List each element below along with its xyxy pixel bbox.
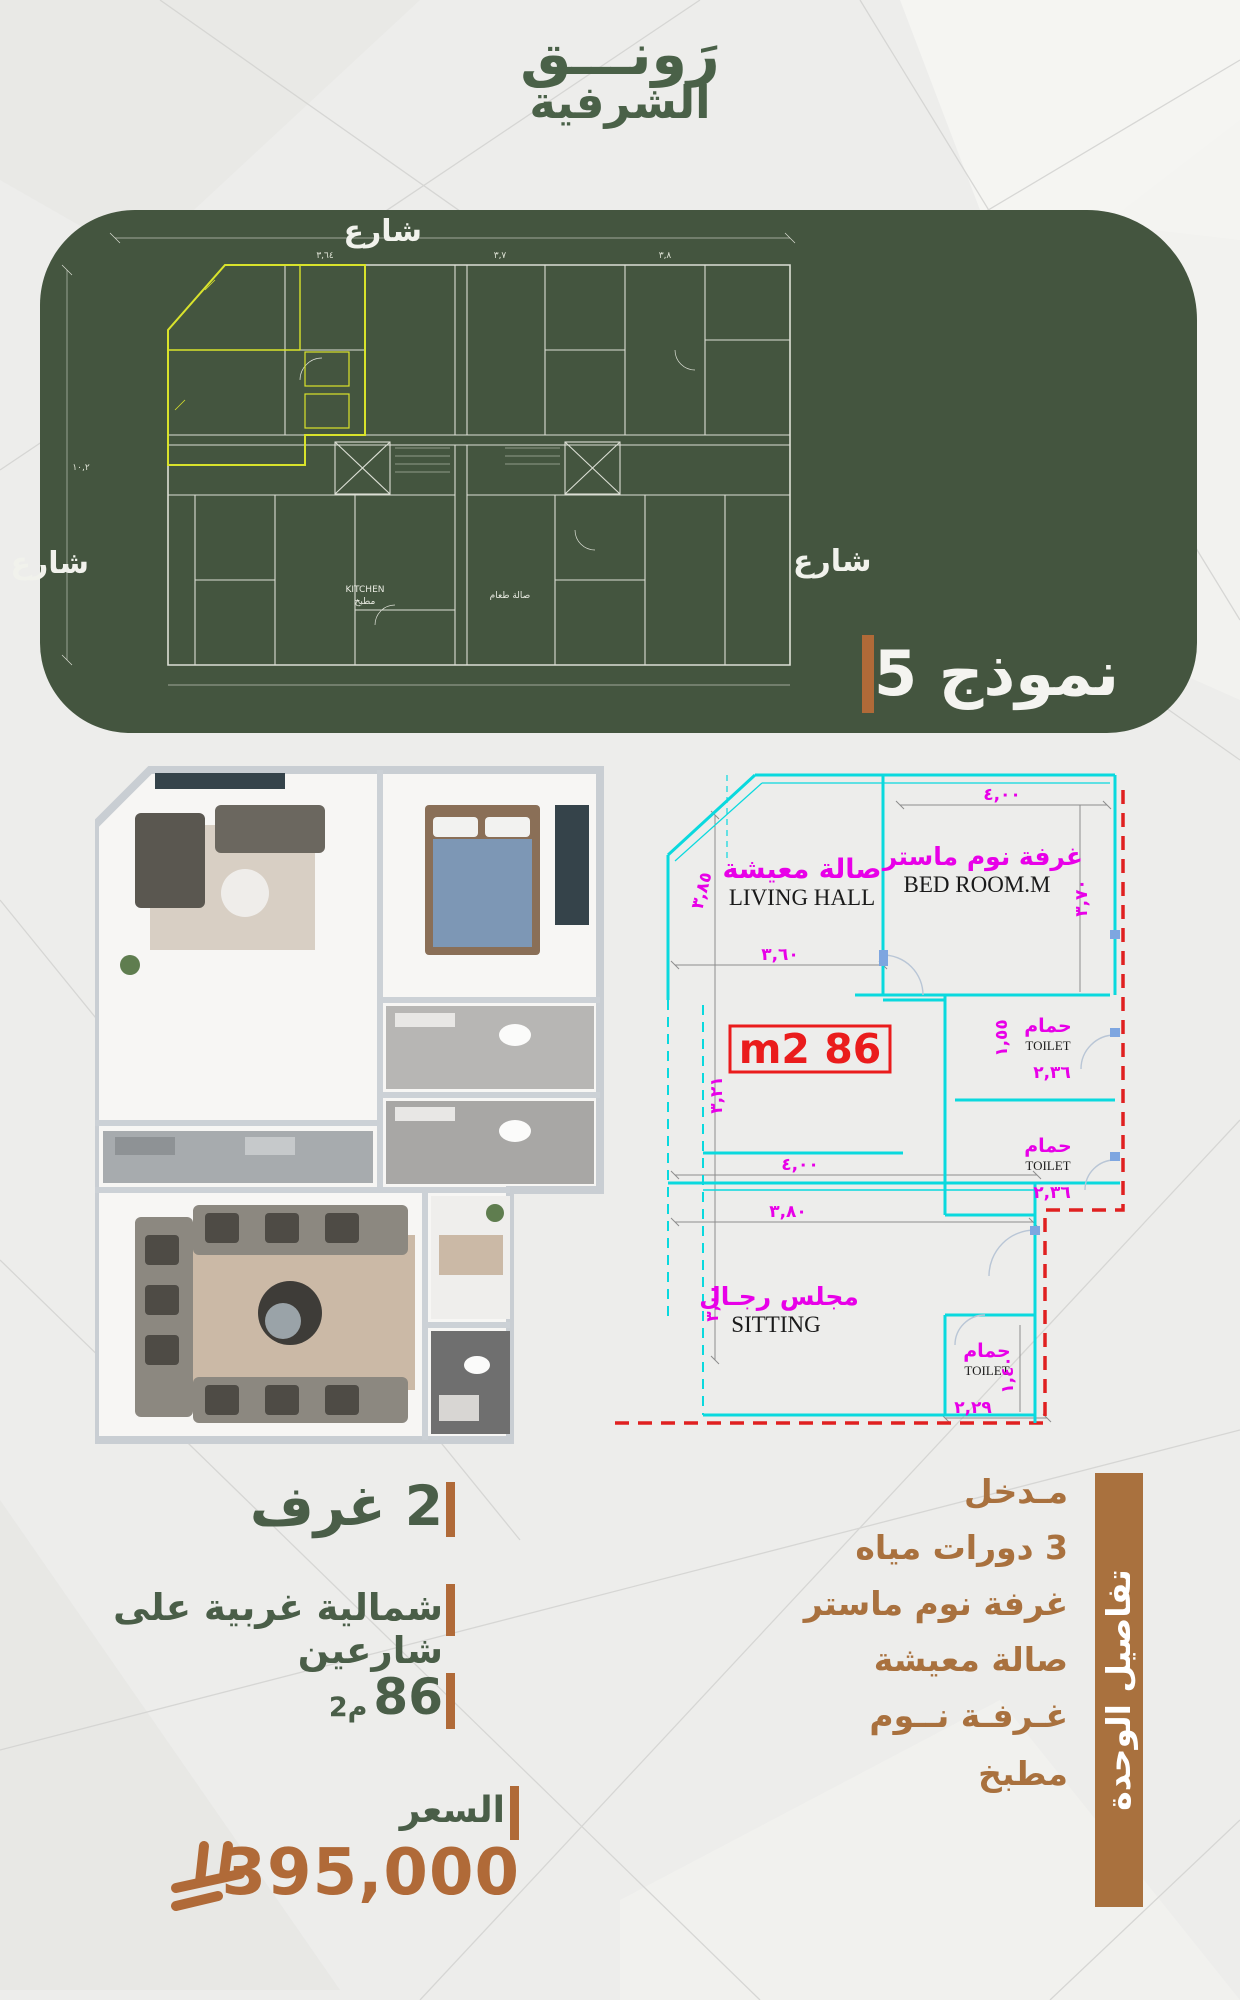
cad-toilet2-en: TOILET	[1025, 1158, 1070, 1173]
detail-area-row: 86 م2	[329, 1668, 443, 1726]
cad-sitting-ar: مجلس رجـال	[699, 1282, 859, 1311]
saudi-riyal-icon	[166, 1838, 246, 1918]
detail-rooms-bar	[446, 1482, 455, 1537]
dim-380: ٣,٨٠	[769, 1202, 807, 1222]
plan-kitchen-ar: مطبخ	[355, 597, 376, 607]
sidebar-item-kitchen: مطبخ	[978, 1754, 1068, 1793]
cad-unit-plan: صالة معيشة LIVING HALL غرفة نوم ماستر BE…	[515, 760, 1175, 1450]
plan-kitchen-en: KITCHEN	[346, 585, 385, 595]
cad-master-ar: غرفة نوم ماستر	[881, 842, 1083, 872]
detail-orientation-bar	[446, 1584, 455, 1636]
brand-logo-line2: الشرفية	[470, 80, 770, 126]
svg-text:٣,٧: ٣,٧	[494, 251, 507, 261]
detail-area-bar	[446, 1673, 455, 1729]
dim-400a: ٤,٠٠	[983, 785, 1021, 805]
sidebar-title: تفاصيل الوحدة	[1095, 1473, 1143, 1907]
detail-area-value: 86	[373, 1668, 443, 1726]
cad-living-en: LIVING HALL	[729, 885, 875, 910]
sidebar-item-entrance: مـدخل	[964, 1472, 1068, 1511]
sidebar-item-living-hall: صالة معيشة	[874, 1640, 1068, 1679]
price-label-row: السعر	[400, 1790, 505, 1831]
dim-300: ٣,٠٠	[703, 1284, 723, 1322]
dim-321: ٣,٢١	[707, 1076, 727, 1114]
brand-logo: رَونـــق الشرفية	[470, 26, 770, 126]
price-label-text: السعر	[400, 1790, 505, 1831]
cad-toilet1-en: TOILET	[1025, 1038, 1070, 1053]
model-title-accent-bar	[862, 635, 874, 713]
cad-toilet2-ar: حمام	[1024, 1135, 1072, 1157]
price-label-bar	[510, 1786, 519, 1840]
detail-area-unit: م2	[329, 1692, 368, 1723]
cad-living-ar: صالة معيشة	[723, 854, 882, 885]
dim-360: ٣,٦٠	[761, 945, 799, 965]
siteplan-drawing: ٣,٦٤ ٣,٧ ٣,٨ ١٠,٢ KITCHEN مطبخ صالة طعام	[55, 230, 800, 700]
model-title-row: نموذج 5	[846, 635, 1119, 713]
dim-385: ٣,٨٥	[688, 870, 717, 911]
detail-orientation-row: شمالية غربية على شارعين	[0, 1586, 443, 1672]
detail-rooms-row: 2 غرف	[250, 1474, 443, 1538]
svg-text:٣,٨: ٣,٨	[659, 251, 672, 261]
dim-236a: ٢,٣٦	[1033, 1063, 1071, 1083]
cad-toilet1-ar: حمام	[1024, 1015, 1072, 1037]
sidebar-title-bar: تفاصيل الوحدة	[1095, 1473, 1143, 1907]
flyer-page: رَونـــق الشرفية شارع شارع شارع	[0, 0, 1240, 2000]
dim-155: ١,٥٥	[992, 1019, 1012, 1057]
street-label-right: شارع	[793, 544, 872, 579]
cad-master-en: BED ROOM.M	[904, 872, 1051, 897]
siteplan-panel: شارع شارع شارع	[40, 210, 1197, 733]
dim-229: ٢,٢٩	[954, 1398, 992, 1418]
detail-rooms-text: 2 غرف	[250, 1474, 443, 1538]
price-value: 395,000	[222, 1836, 521, 1910]
dim-236b: ٢,٣٦	[1033, 1183, 1071, 1203]
area-badge-text: 86 m2	[739, 1025, 882, 1073]
detail-orientation-text: شمالية غربية على شارعين	[0, 1586, 443, 1672]
sidebar-item-bathrooms: 3 دورات مياه	[855, 1528, 1068, 1567]
plan-dining-ar: صالة طعام	[490, 591, 531, 601]
dim-400b: ٤,٠٠	[781, 1155, 819, 1175]
sidebar-item-bedroom: غـرفـة نــوم	[869, 1696, 1068, 1735]
model-title: نموذج 5	[874, 635, 1119, 713]
dim-370: ٣,٧٠	[1072, 879, 1092, 917]
sidebar-item-master-bedroom: غرفة نوم ماستر	[804, 1584, 1068, 1623]
svg-text:٣,٦٤: ٣,٦٤	[316, 251, 334, 261]
dim-140: ١,٤٠	[998, 1356, 1018, 1394]
cad-sitting-en: SITTING	[731, 1312, 820, 1337]
svg-text:١٠,٢: ١٠,٢	[72, 463, 90, 473]
